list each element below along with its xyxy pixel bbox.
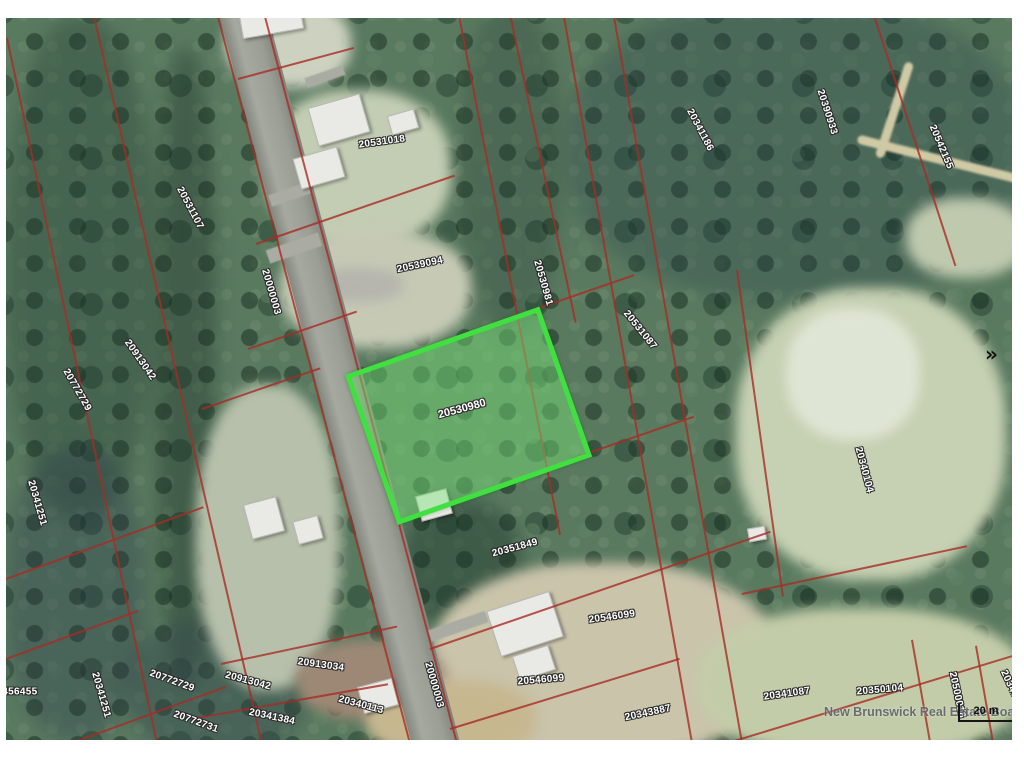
pale-clearing [786,308,920,440]
screenshot-frame: 2053101820539094205311072000000320530981… [0,0,1024,768]
parcel-label: 20456455 [6,687,37,698]
forest-tint [6,18,156,518]
pan-east-icon[interactable]: » [985,344,998,364]
scale-bar: 20 m [958,704,1012,722]
clearing [906,198,1012,278]
scale-label: 20 m [973,705,998,717]
parcel-label: 20531087 [621,308,659,351]
map-canvas[interactable]: 2053101820539094205311072000000320530981… [6,18,1012,740]
